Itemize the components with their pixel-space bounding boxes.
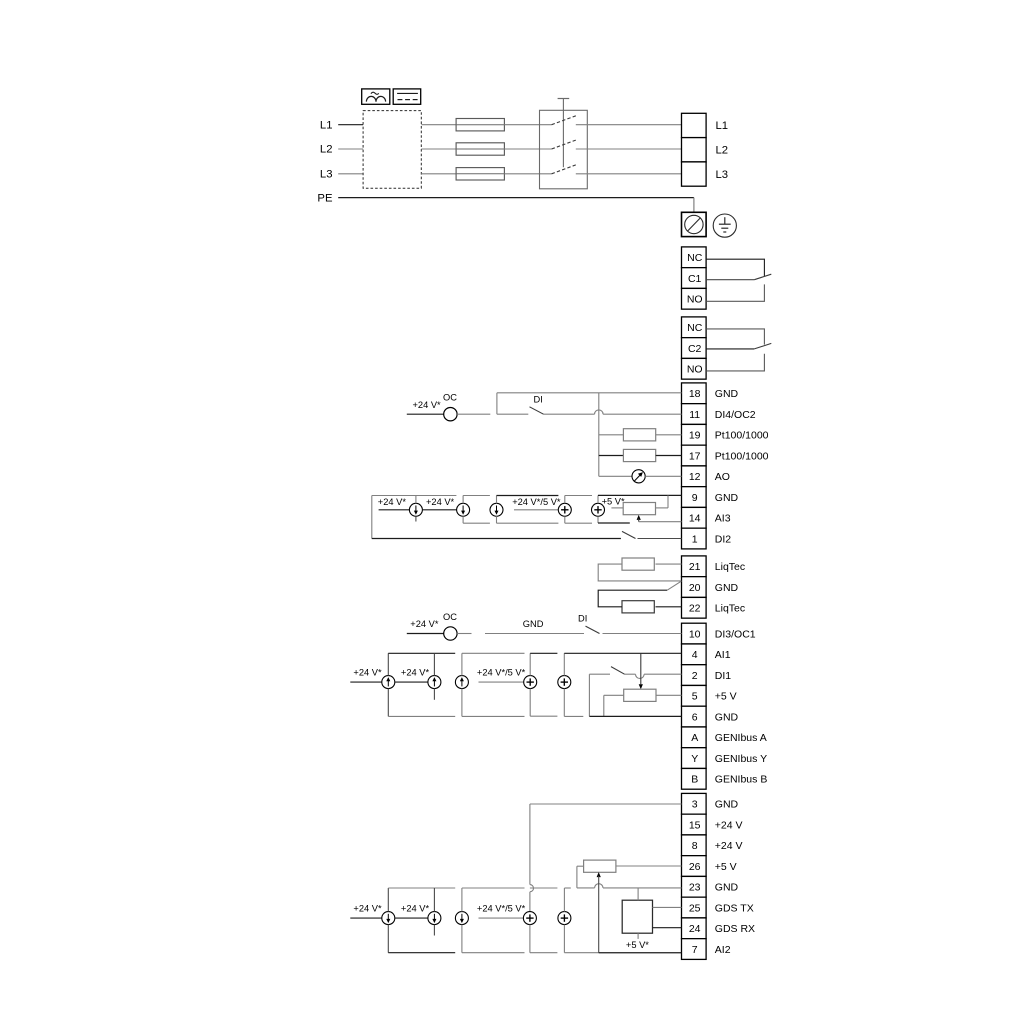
svg-text:+5 V*: +5 V* [602,497,625,507]
svg-text:+24 V*: +24 V* [410,619,439,629]
svg-text:GND: GND [715,388,739,400]
svg-text:7: 7 [692,944,698,956]
svg-text:18: 18 [689,388,701,400]
svg-text:+24 V*: +24 V* [413,400,442,410]
svg-text:+24 V*/5 V*: +24 V*/5 V* [477,668,526,678]
svg-text:GENIbus A: GENIbus A [715,732,767,744]
svg-text:AO: AO [715,471,730,483]
svg-text:DI3/OC1: DI3/OC1 [715,628,756,640]
svg-text:GND: GND [523,619,544,629]
svg-text:+24 V: +24 V [715,840,743,852]
svg-text:B: B [691,774,698,786]
svg-text:L3: L3 [716,169,729,181]
svg-text:A: A [691,732,698,744]
svg-text:12: 12 [689,471,701,483]
svg-text:NO: NO [687,364,703,376]
svg-text:PE: PE [317,192,333,204]
svg-text:DI2: DI2 [715,533,732,545]
svg-text:+24 V*/5 V*: +24 V*/5 V* [512,497,561,507]
svg-text:AI3: AI3 [715,513,731,525]
svg-text:DI1: DI1 [715,670,732,682]
svg-text:Pt100/1000: Pt100/1000 [715,430,769,442]
svg-text:3: 3 [692,799,698,811]
svg-text:22: 22 [689,603,701,615]
svg-text:OC: OC [443,393,457,403]
svg-text:+5 V: +5 V [715,691,737,703]
svg-text:C1: C1 [688,273,702,285]
svg-text:21: 21 [689,561,701,573]
svg-text:+24 V*: +24 V* [426,497,455,507]
svg-text:+24 V*: +24 V* [401,904,430,914]
svg-text:5: 5 [692,691,698,703]
svg-text:NO: NO [687,294,703,306]
svg-text:L1: L1 [320,119,333,131]
svg-text:+24 V*: +24 V* [401,668,430,678]
svg-text:Pt100/1000: Pt100/1000 [715,450,769,462]
svg-text:+24 V*: +24 V* [353,668,382,678]
svg-text:GENIbus Y: GENIbus Y [715,753,767,765]
svg-text:DI: DI [534,394,543,404]
svg-text:26: 26 [689,861,701,873]
svg-text:GDS RX: GDS RX [715,923,755,935]
svg-text:+24 V*: +24 V* [353,904,382,914]
svg-text:15: 15 [689,819,701,831]
svg-text:AI2: AI2 [715,944,731,956]
svg-text:OC: OC [443,612,457,622]
svg-text:C2: C2 [688,343,702,355]
svg-text:L2: L2 [716,144,729,156]
svg-text:L3: L3 [320,169,333,181]
svg-text:+24 V: +24 V [715,819,743,831]
svg-text:8: 8 [692,840,698,852]
svg-text:LiqTec: LiqTec [715,603,745,615]
svg-text:4: 4 [692,649,698,661]
svg-text:9: 9 [692,492,698,504]
svg-text:2: 2 [692,670,698,682]
svg-text:23: 23 [689,882,701,894]
svg-text:+5 V: +5 V [715,861,737,873]
svg-text:17: 17 [689,450,701,462]
svg-text:LiqTec: LiqTec [715,561,745,573]
svg-text:24: 24 [689,923,701,935]
svg-text:20: 20 [689,582,701,594]
svg-text:Y: Y [691,753,698,765]
svg-text:19: 19 [689,430,701,442]
svg-text:6: 6 [692,711,698,723]
svg-text:NC: NC [687,252,703,264]
svg-text:GND: GND [715,711,739,723]
svg-text:GDS TX: GDS TX [715,902,754,914]
svg-text:DI: DI [578,614,587,624]
svg-text:+5 V*: +5 V* [626,940,649,950]
svg-text:GND: GND [715,582,739,594]
svg-text:GENIbus B: GENIbus B [715,774,768,786]
svg-text:+24 V*: +24 V* [378,497,407,507]
svg-text:1: 1 [692,533,698,545]
svg-text:+24 V*/5 V*: +24 V*/5 V* [477,904,526,914]
svg-text:DI4/OC2: DI4/OC2 [715,409,756,421]
svg-text:10: 10 [689,628,701,640]
svg-text:25: 25 [689,902,701,914]
svg-text:14: 14 [689,513,701,525]
svg-text:GND: GND [715,882,739,894]
svg-text:L2: L2 [320,144,333,156]
svg-text:11: 11 [689,409,700,421]
svg-text:L1: L1 [716,120,729,132]
svg-text:AI1: AI1 [715,649,731,661]
svg-text:NC: NC [687,322,703,334]
svg-text:GND: GND [715,492,739,504]
svg-text:GND: GND [715,799,739,811]
